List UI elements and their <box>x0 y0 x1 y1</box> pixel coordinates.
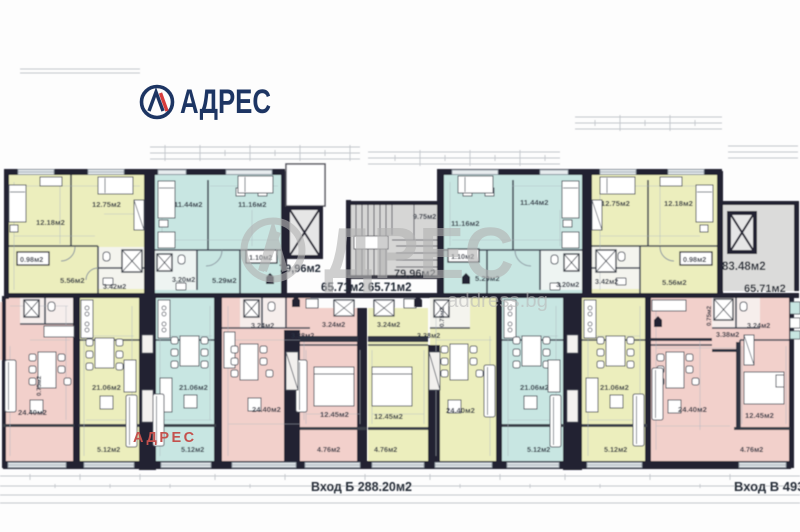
svg-text:3.24м2: 3.24м2 <box>251 321 274 330</box>
svg-text:0.75м2: 0.75м2 <box>36 375 43 396</box>
svg-text:12.45м2: 12.45м2 <box>745 411 774 420</box>
svg-text:5.56м2: 5.56м2 <box>60 276 85 285</box>
svg-text:Вход В 493: Вход В 493 <box>734 479 800 494</box>
svg-text:5.56м2: 5.56м2 <box>662 278 687 287</box>
svg-text:12.18м2: 12.18м2 <box>664 199 693 208</box>
svg-text:3.24м2: 3.24м2 <box>322 320 345 329</box>
svg-text:65.71м2: 65.71м2 <box>744 283 786 295</box>
svg-text:11.44м2: 11.44м2 <box>174 200 202 209</box>
svg-text:21.06м2: 21.06м2 <box>600 383 629 392</box>
svg-text:4.76м2: 4.76м2 <box>317 445 340 454</box>
svg-text:24.40м2: 24.40м2 <box>446 406 475 415</box>
svg-text:5.12м2: 5.12м2 <box>181 445 204 454</box>
svg-text:21.06м2: 21.06м2 <box>179 383 208 392</box>
svg-text:ДРЕС: ДРЕС <box>324 214 514 294</box>
svg-text:0.75м2: 0.75м2 <box>706 305 713 326</box>
svg-text:3.38м2: 3.38м2 <box>291 331 314 340</box>
svg-text:24.40м2: 24.40м2 <box>252 405 281 414</box>
svg-text:4.76м2: 4.76м2 <box>374 445 397 454</box>
svg-text:24.40м2: 24.40м2 <box>18 408 47 417</box>
svg-text:21.06м2: 21.06м2 <box>520 383 549 392</box>
svg-text:11.16м2: 11.16м2 <box>238 200 266 209</box>
svg-text:5.12м2: 5.12м2 <box>527 445 550 454</box>
svg-text:5.29м2: 5.29м2 <box>212 276 237 285</box>
svg-text:5.12м2: 5.12м2 <box>604 445 627 454</box>
svg-text:3.42м2: 3.42м2 <box>103 282 126 291</box>
svg-text:3.24м2: 3.24м2 <box>377 320 400 329</box>
svg-text:АДРЕС: АДРЕС <box>180 83 271 121</box>
svg-text:Вход Б 288.20м2: Вход Б 288.20м2 <box>311 479 412 494</box>
svg-text:3.42м2: 3.42м2 <box>595 277 618 286</box>
svg-text:12.75м2: 12.75м2 <box>92 200 121 209</box>
svg-text:address.bg: address.bg <box>447 290 548 312</box>
svg-text:4.76м2: 4.76м2 <box>740 445 763 454</box>
svg-text:0.98м2: 0.98м2 <box>20 255 43 264</box>
svg-text:11.44м2: 11.44м2 <box>520 198 548 207</box>
svg-text:3.24м2: 3.24м2 <box>747 321 770 330</box>
svg-text:24.40м2: 24.40м2 <box>678 405 707 414</box>
svg-text:12.75м2: 12.75м2 <box>601 199 630 208</box>
svg-text:12.45м2: 12.45м2 <box>320 410 349 419</box>
svg-text:3.38м2: 3.38м2 <box>716 330 739 339</box>
svg-text:3.38м2: 3.38м2 <box>417 331 440 340</box>
svg-text:3.20м2: 3.20м2 <box>556 280 579 289</box>
svg-text:21.06м2: 21.06м2 <box>92 383 121 392</box>
svg-text:12.45м2: 12.45м2 <box>374 412 403 421</box>
svg-text:АДРЕС: АДРЕС <box>133 430 197 446</box>
svg-text:12.18м2: 12.18м2 <box>36 218 65 227</box>
svg-text:83.48м2: 83.48м2 <box>722 261 766 273</box>
svg-text:5.12м2: 5.12м2 <box>97 445 120 454</box>
svg-text:0.98м2: 0.98м2 <box>683 255 706 264</box>
svg-text:3.20м2: 3.20м2 <box>172 275 195 284</box>
svg-text:0.75м2: 0.75м2 <box>439 306 446 327</box>
